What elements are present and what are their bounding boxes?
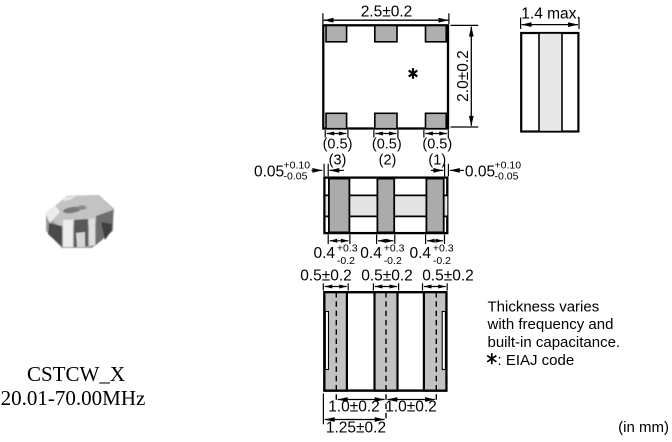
svg-text:(0.5): (0.5) [323,137,353,153]
svg-text:0.5±0.2: 0.5±0.2 [300,267,352,284]
svg-text:(3): (3) [329,152,347,168]
svg-text:0.4: 0.4 [314,245,336,262]
svg-text:with frequency and: with frequency and [487,316,614,333]
svg-text:0.4: 0.4 [410,245,432,262]
svg-text:0.05: 0.05 [465,163,495,180]
svg-text:CSTCW_X: CSTCW_X [27,362,125,386]
svg-text:-0.05: -0.05 [495,171,519,183]
svg-text:-0.05: -0.05 [284,171,308,183]
svg-text:(2): (2) [379,152,397,168]
svg-text:: EIAJ code: : EIAJ code [498,352,575,369]
svg-text:(0.5): (0.5) [372,137,402,153]
svg-text:0.4: 0.4 [360,245,382,262]
svg-text:+0.3: +0.3 [433,243,454,255]
svg-text:+0.3: +0.3 [384,243,405,255]
svg-text:0.5±0.2: 0.5±0.2 [422,267,474,284]
svg-text:1.25±0.2: 1.25±0.2 [326,420,386,437]
svg-text:2.0±0.2: 2.0±0.2 [455,50,472,102]
svg-text:1.0±0.2: 1.0±0.2 [385,399,437,416]
svg-text:-0.2: -0.2 [337,255,355,267]
svg-text:built-in capacitance.: built-in capacitance. [488,334,621,351]
svg-text:1.4 max.: 1.4 max. [521,6,580,23]
svg-text:(in mm): (in mm) [618,419,669,436]
svg-text:(1): (1) [428,152,446,168]
svg-text:Thickness varies: Thickness varies [488,298,600,315]
svg-text:+0.3: +0.3 [337,243,358,255]
svg-text:2.5±0.2: 2.5±0.2 [361,4,413,21]
svg-text:-0.2: -0.2 [384,255,402,267]
svg-text:0.05: 0.05 [254,163,284,180]
svg-text:1.0±0.2: 1.0±0.2 [328,399,380,416]
svg-text:0.5±0.2: 0.5±0.2 [361,267,413,284]
svg-text:20.01-70.00MHz: 20.01-70.00MHz [1,386,146,410]
svg-text:(0.5): (0.5) [422,137,452,153]
svg-text:-0.2: -0.2 [433,255,451,267]
